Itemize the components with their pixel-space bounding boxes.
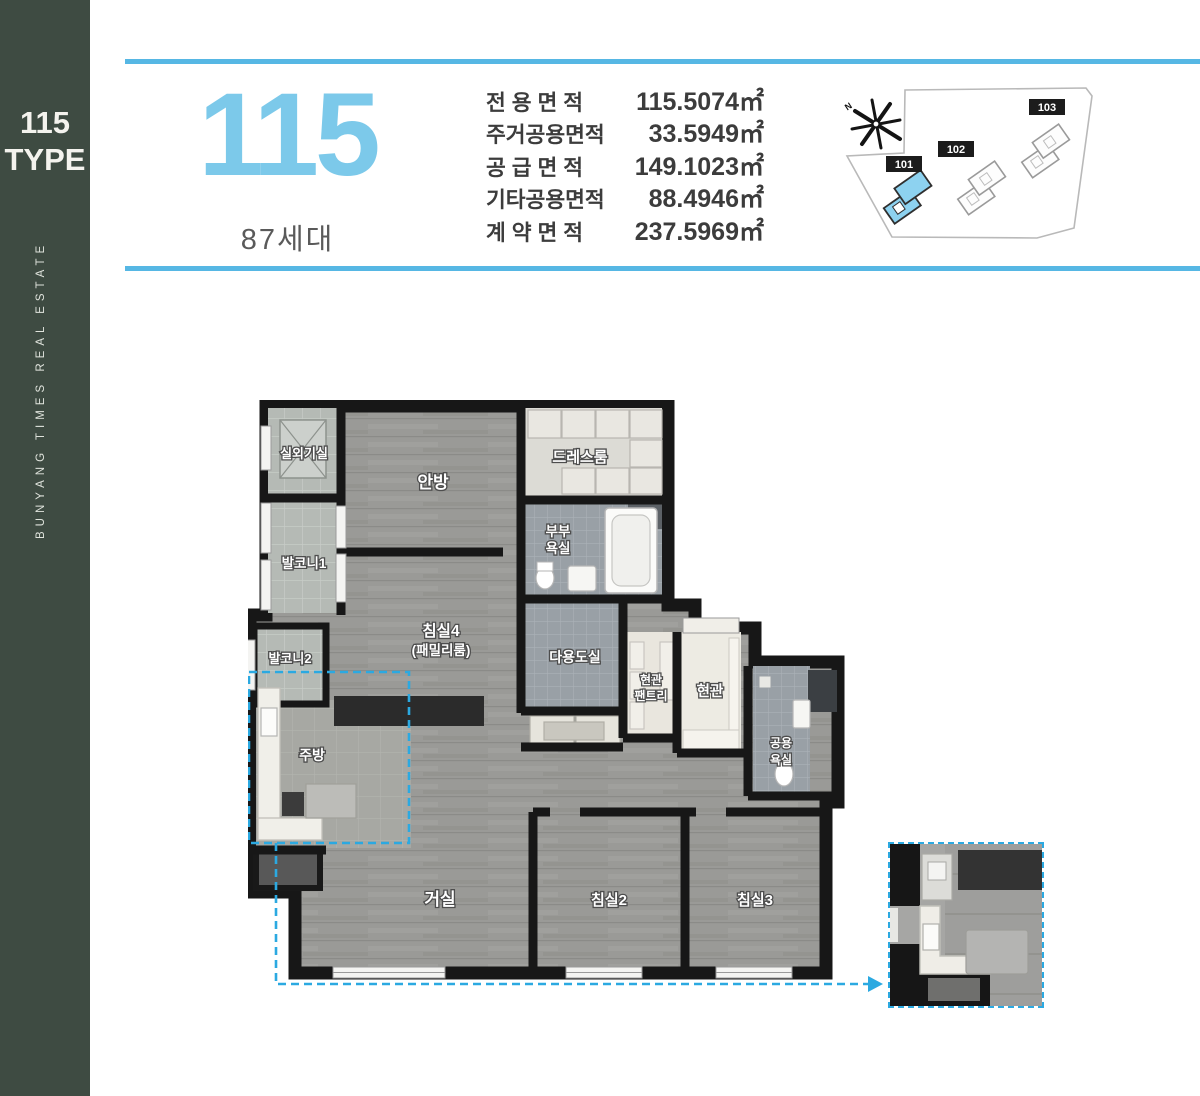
- brand-vertical-text: BUNYANG TIMES REAL ESTATE: [35, 267, 55, 539]
- room-label-common-bath: 공용: [770, 735, 792, 750]
- room-label-balcony2: 발코니2: [268, 651, 311, 666]
- area-row-value: 115.5074㎡: [636, 82, 764, 118]
- compass-icon: N: [843, 100, 900, 148]
- table-row: 계 약 면 적 237.5969㎡: [486, 212, 764, 244]
- floor-plan: 실외기실 발코니1 안방 드레스룸 부부 욕실 침실4 (패밀리룸) 발코니2 …: [248, 400, 888, 1033]
- room-label-dressroom: 드레스룸: [552, 449, 607, 466]
- sidebar: 115 TYPE BUNYANG TIMES REAL ESTATE: [0, 0, 90, 1096]
- table-row: 주거공용면적 33.5949㎡: [486, 114, 764, 146]
- kitchen-detail-inset: [888, 842, 1044, 1008]
- inset-window: [890, 908, 898, 942]
- room-label-utility: 다용도실: [549, 649, 601, 665]
- room-label-living: 거실: [424, 890, 455, 909]
- top-accent-rule: [125, 59, 1200, 64]
- bottom-accent-rule: [125, 266, 1200, 271]
- table-row: 전 용 면 적 115.5074㎡: [486, 82, 764, 114]
- room-label-couple-bath: 욕실: [546, 541, 571, 556]
- room-label-couple-bath: 부부: [546, 524, 571, 539]
- room-label-bed4: 침실4: [422, 621, 460, 640]
- area-row-label: 기타공용면적: [486, 183, 605, 214]
- svg-text:101: 101: [895, 159, 913, 171]
- site-plan: N: [828, 76, 1198, 261]
- svg-text:103: 103: [1038, 102, 1056, 114]
- flyer-page: 115 TYPE BUNYANG TIMES REAL ESTATE 115 8…: [0, 0, 1200, 1096]
- building-badge-103: 103: [1029, 99, 1065, 115]
- area-row-label: 공 급 면 적: [486, 151, 583, 182]
- inset-island: [966, 930, 1028, 974]
- sidebar-type-label: 115 TYPE: [0, 105, 90, 178]
- sidebar-type-number: 115: [0, 105, 90, 142]
- area-row-value: 88.4946㎡: [649, 179, 764, 215]
- inset-arrowhead-icon: [868, 976, 883, 992]
- room-label-bed2: 침실2: [591, 892, 627, 909]
- area-row-value: 237.5969㎡: [635, 212, 764, 248]
- room-label-balcony1: 발코니1: [282, 555, 327, 571]
- compass-north-label: N: [843, 101, 854, 113]
- inset-wall: [890, 844, 920, 906]
- area-row-label: 주거공용면적: [486, 118, 605, 149]
- sidebar-type-word: TYPE: [0, 142, 90, 179]
- page-title-type-number: 115: [180, 76, 395, 194]
- building-badge-101: 101: [886, 156, 922, 172]
- room-label-bed3: 침실3: [737, 892, 773, 909]
- room-label-kitchen: 주방: [299, 747, 325, 763]
- area-row-value: 149.1023㎡: [635, 147, 764, 183]
- area-table: 전 용 면 적 115.5074㎡ 주거공용면적 33.5949㎡ 공 급 면 …: [486, 82, 764, 244]
- svg-text:102: 102: [947, 144, 965, 156]
- building-badge-102: 102: [938, 141, 974, 157]
- room-label-outdoor-unit: 실외기실: [280, 446, 328, 461]
- area-row-value: 33.5949㎡: [649, 114, 764, 150]
- room-label-master: 안방: [417, 473, 449, 492]
- inset-cabinet: [958, 850, 1042, 890]
- area-row-label: 계 약 면 적: [486, 216, 583, 247]
- unit-count: 87세대: [180, 216, 395, 258]
- table-row: 공 급 면 적 149.1023㎡: [486, 147, 764, 179]
- table-row: 기타공용면적 88.4946㎡: [486, 179, 764, 211]
- room-label-bed4-sub: (패밀리룸): [412, 643, 471, 658]
- room-label-pantry: 팬트리: [634, 688, 667, 703]
- room-label-pantry: 현관: [640, 672, 662, 687]
- inset-wall: [890, 944, 920, 1006]
- area-row-label: 전 용 면 적: [486, 86, 583, 117]
- room-label-entrance: 현관: [697, 683, 724, 700]
- inset-sink: [923, 924, 939, 950]
- room-label-common-bath: 욕실: [770, 752, 792, 767]
- inset-range: [928, 978, 980, 1001]
